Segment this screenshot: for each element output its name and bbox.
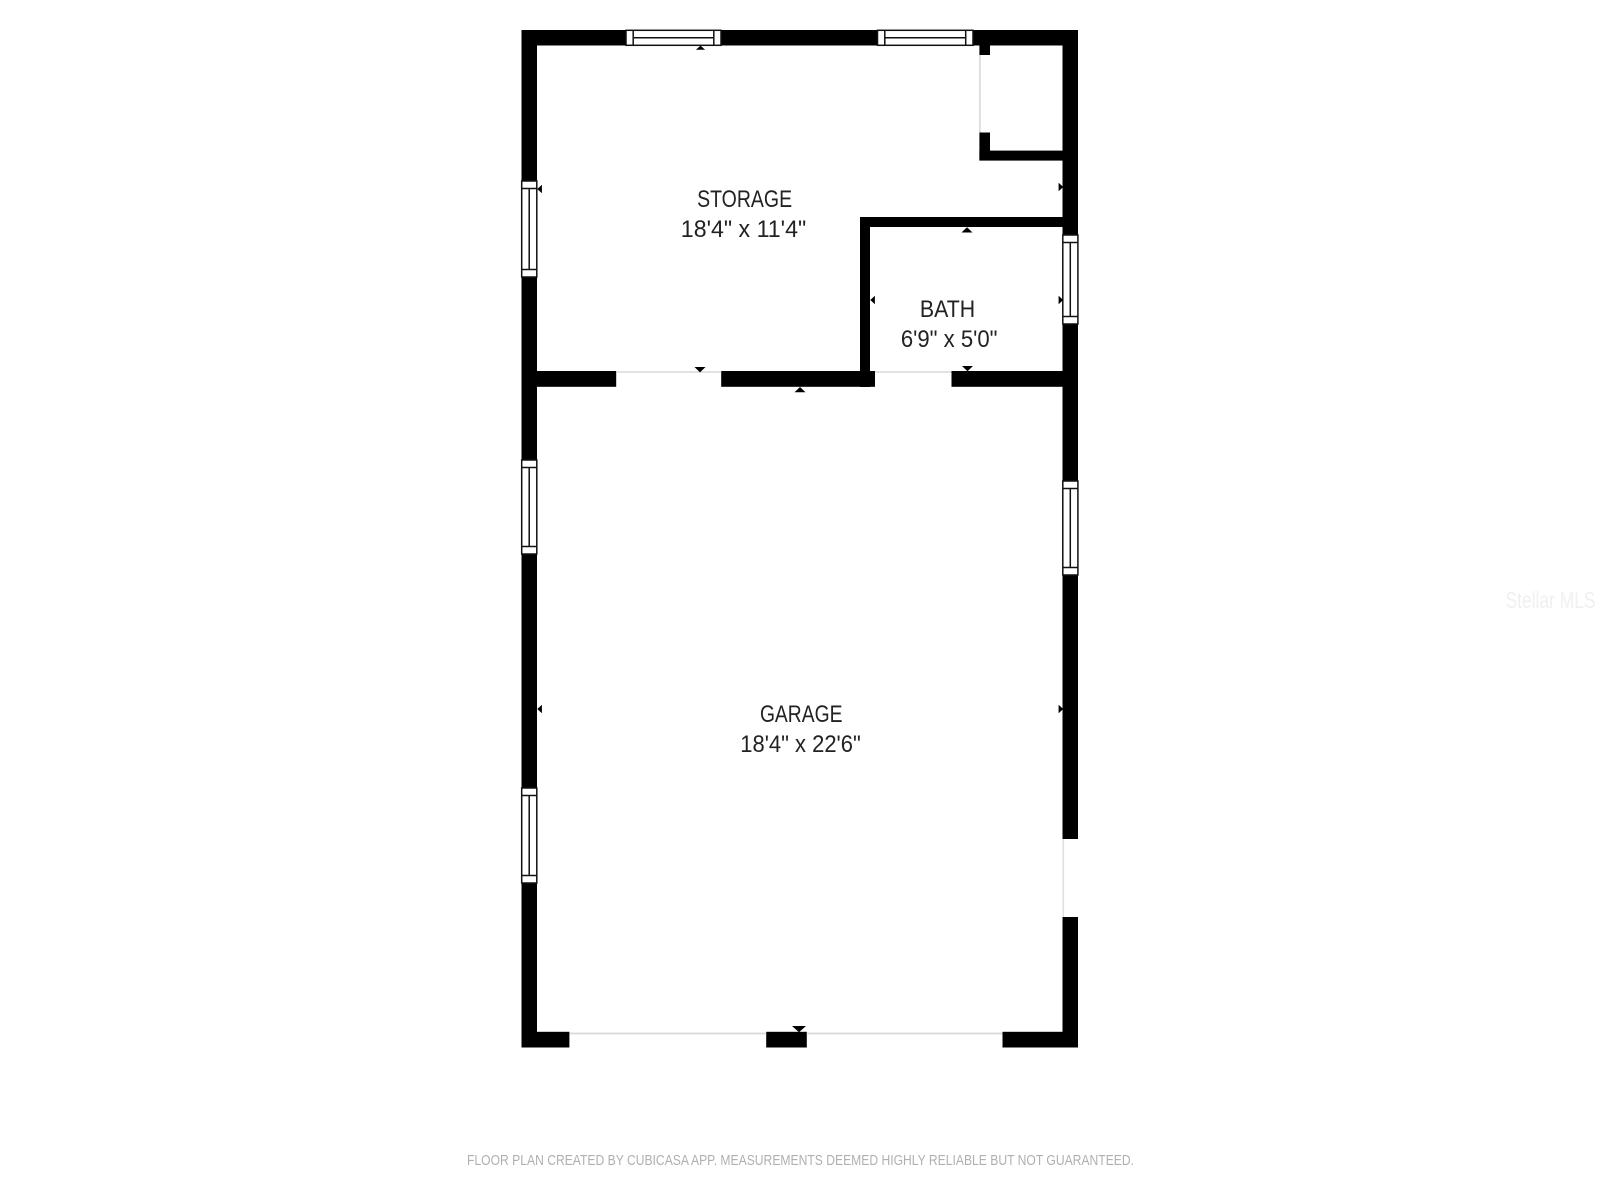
svg-text:BATH: BATH <box>920 296 975 323</box>
svg-text:GARAGE: GARAGE <box>760 701 843 728</box>
svg-text:FLOOR PLAN CREATED BY CUBICASA: FLOOR PLAN CREATED BY CUBICASA APP. MEAS… <box>467 1153 1134 1169</box>
svg-text:Stellar MLS: Stellar MLS <box>1506 587 1596 613</box>
svg-text:18'4" x 22'6": 18'4" x 22'6" <box>740 731 861 758</box>
svg-text:STORAGE: STORAGE <box>697 186 792 213</box>
svg-text:18'4" x 11'4": 18'4" x 11'4" <box>681 216 806 243</box>
svg-text:6'9" x 5'0": 6'9" x 5'0" <box>901 326 998 353</box>
